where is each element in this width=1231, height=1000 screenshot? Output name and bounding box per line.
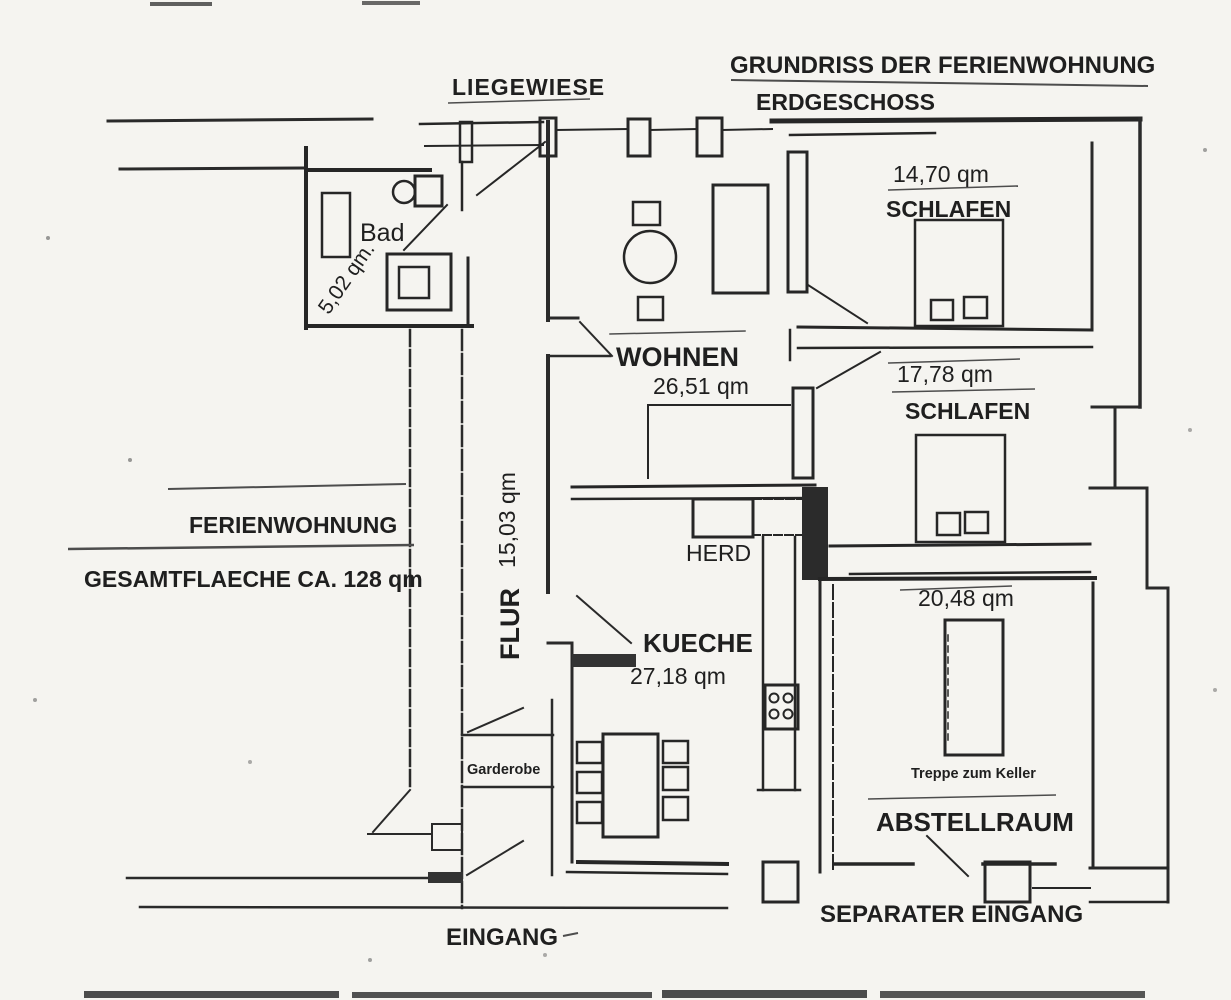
kueche-door-swing	[577, 596, 631, 643]
liegewiese-label: LIEGEWIESE	[452, 74, 605, 100]
wall-block	[802, 487, 828, 580]
garderobe-niche	[428, 708, 553, 883]
nightstand-icon	[964, 297, 987, 318]
dining-set	[577, 734, 688, 837]
bed-icon	[915, 220, 1003, 326]
floor-plan-page: LIEGEWIESE GRUNDRISS DER FERIENWOHNUNG E…	[0, 0, 1231, 1000]
herd-counter-ext	[753, 499, 810, 535]
cooktop-icon	[765, 685, 798, 729]
schlafen1-area: 14,70 qm	[893, 161, 989, 187]
abstellraum-door-swing	[927, 836, 968, 876]
chair-icon	[633, 202, 660, 225]
bad-door-swing	[404, 205, 447, 250]
threshold-bar	[572, 654, 636, 667]
floor-plan-svg: LIEGEWIESE GRUNDRISS DER FERIENWOHNUNG E…	[0, 0, 1231, 1000]
chair-icon	[577, 742, 602, 763]
room-schlafen2	[830, 435, 1090, 574]
schlafen2-area: 17,78 qm	[897, 361, 993, 387]
entry-door-swing	[373, 790, 410, 832]
separate-entrance-wall	[763, 862, 1168, 902]
sofa-icon	[713, 185, 768, 293]
round-table-icon	[624, 231, 676, 283]
garderobe-door-swing-top	[468, 708, 523, 732]
wall-pier	[763, 862, 798, 902]
schlafen2-door-swing	[817, 352, 880, 388]
kueche-label: KUECHE	[643, 628, 753, 658]
wohnen-southeast-pillar	[793, 388, 813, 478]
treppe-label: Treppe zum Keller	[911, 766, 1036, 782]
abstellraum-label: ABSTELLRAUM	[876, 807, 1074, 837]
flur-area: 15,03 qm	[494, 472, 520, 568]
separater-eingang-label: SEPARATER EINGANG	[820, 901, 1083, 928]
top-wall	[420, 118, 1140, 156]
shower-icon	[387, 254, 451, 310]
nightstand-icon	[937, 513, 960, 535]
herd-label: HERD	[686, 540, 751, 566]
page-title: GRUNDRISS DER FERIENWOHNUNG	[730, 52, 1155, 79]
bad-area: 5,02 qm.	[314, 238, 380, 318]
stairs-icon	[945, 620, 1003, 755]
abstellraum-area: 20,48 qm	[918, 585, 1014, 611]
chair-icon	[663, 741, 688, 763]
herd-counter	[693, 499, 753, 537]
toilet-icon	[393, 176, 442, 206]
entry-sill	[428, 872, 463, 883]
garderobe-label: Garderobe	[467, 762, 540, 778]
schlafen1-label: SCHLAFEN	[886, 196, 1011, 222]
right-outer-wall	[1090, 119, 1168, 902]
chair-icon	[638, 297, 663, 320]
schlafen1-door-swing	[808, 285, 867, 323]
total-area-label: GESAMTFLAECHE CA. 128 qm	[84, 566, 423, 592]
kueche-area: 27,18 qm	[630, 663, 726, 689]
wohnen-label: WOHNEN	[616, 342, 739, 372]
wohnen-furniture	[624, 185, 768, 320]
garderobe-door-swing-bottom	[467, 841, 523, 875]
room-schlafen1	[790, 220, 1092, 360]
schlafen2-label: SCHLAFEN	[905, 398, 1030, 424]
dining-table-icon	[603, 734, 658, 837]
washbasin-icon	[322, 193, 350, 257]
wohnen-area: 26,51 qm	[653, 373, 749, 399]
door-post	[985, 862, 1030, 902]
chair-icon	[577, 802, 602, 823]
wohnen-east-pillar	[788, 152, 807, 292]
chair-icon	[577, 772, 602, 793]
nightstand-icon	[965, 512, 988, 533]
flur-label: FLUR	[495, 588, 525, 660]
page-subtitle: ERDGESCHOSS	[756, 89, 935, 115]
chair-icon	[663, 767, 688, 790]
liegewiese-fence-diagonal	[477, 142, 545, 195]
nightstand-icon	[931, 300, 953, 320]
wohnen-door-swing	[580, 322, 612, 356]
ferienwohnung-label: FERIENWOHNUNG	[189, 512, 397, 538]
chair-icon	[663, 797, 688, 820]
eingang-label: EINGANG	[446, 924, 558, 951]
